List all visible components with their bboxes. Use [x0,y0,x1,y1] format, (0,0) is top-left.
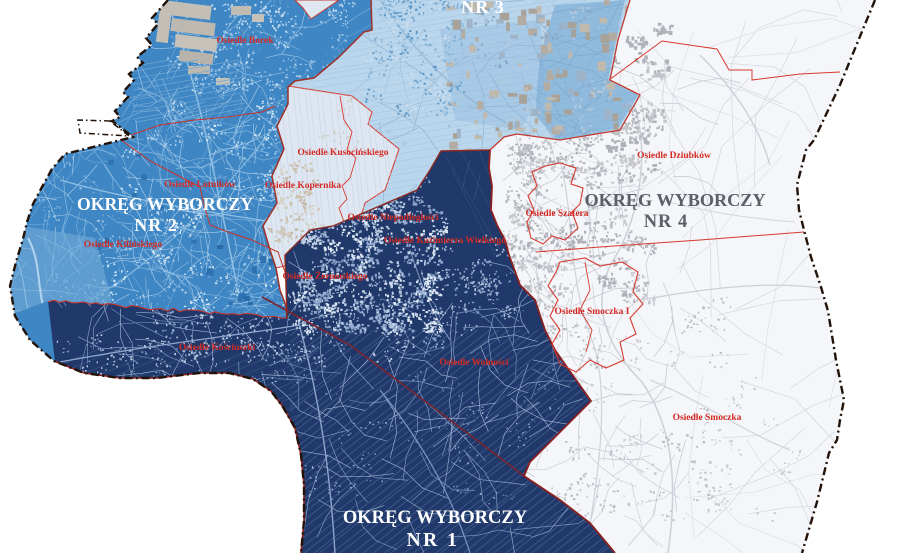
svg-text:OKRĘG WYBORCZY: OKRĘG WYBORCZY [584,190,765,210]
svg-text:Osiedle Kopernika: Osiedle Kopernika [265,181,342,191]
svg-text:Osiedle Lotników: Osiedle Lotników [164,180,236,190]
svg-text:Osiedle Żeromskiego: Osiedle Żeromskiego [282,270,367,282]
svg-text:Osiedle Kościuszki: Osiedle Kościuszki [179,343,256,353]
svg-text:NR 3: NR 3 [461,0,505,17]
svg-text:Osiedle Borek: Osiedle Borek [216,36,274,46]
svg-text:Osiedle Szafera: Osiedle Szafera [525,209,588,219]
svg-text:OKRĘG WYBORCZY: OKRĘG WYBORCZY [343,508,528,528]
svg-text:OKRĘG WYBORCZY: OKRĘG WYBORCZY [77,194,253,214]
svg-text:Osiedle Niepodległości: Osiedle Niepodległości [347,213,438,223]
svg-text:NR 4: NR 4 [644,212,689,232]
svg-text:NR 1: NR 1 [407,530,460,551]
svg-text:Osiedle Dziubków: Osiedle Dziubków [637,151,711,161]
svg-text:Osiedle Kazimierza Wielkiego: Osiedle Kazimierza Wielkiego [384,236,506,246]
svg-text:Osiedle Smoczka: Osiedle Smoczka [673,413,742,423]
svg-text:Osiedle Wolności: Osiedle Wolności [439,358,509,368]
svg-text:Osiedle Kusocińskiego: Osiedle Kusocińskiego [297,148,388,158]
svg-text:NR 2: NR 2 [134,215,178,235]
svg-text:Osiedle Smoczka I: Osiedle Smoczka I [555,307,630,317]
svg-text:Osiedle Kilińskiego: Osiedle Kilińskiego [84,240,163,250]
